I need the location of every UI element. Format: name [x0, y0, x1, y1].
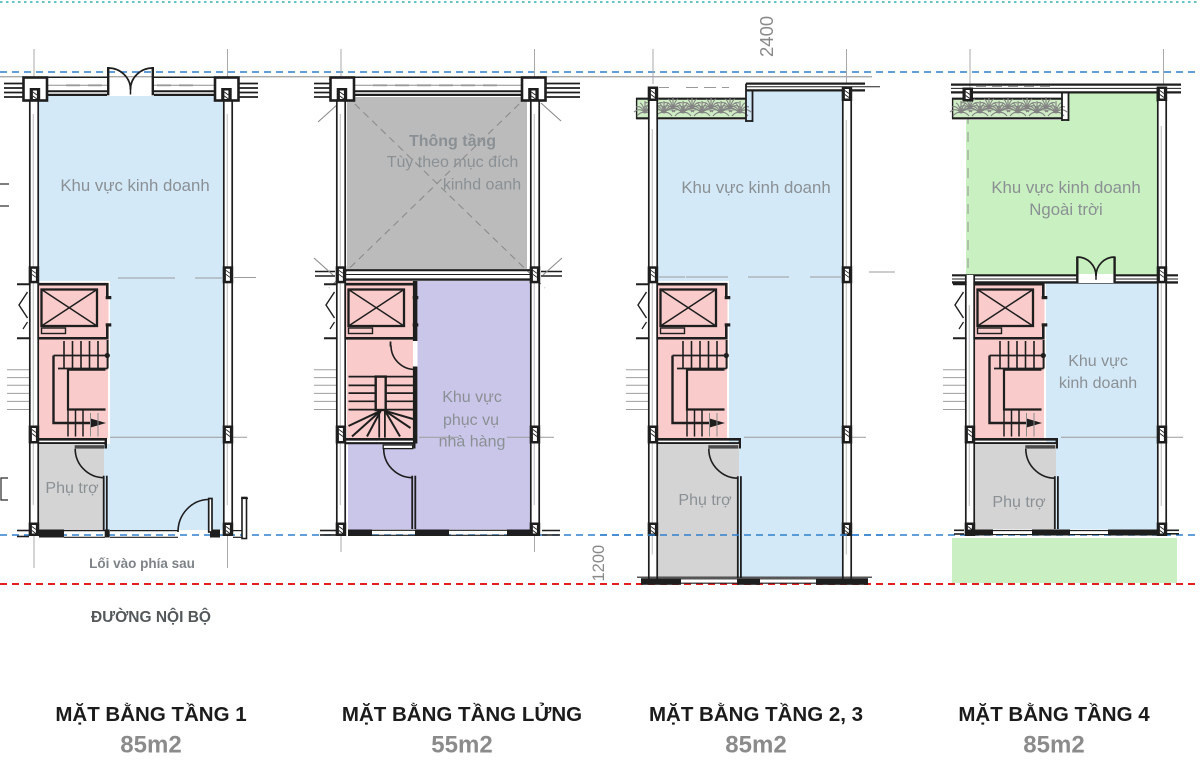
svg-text:Lối vào phía sau: Lối vào phía sau — [89, 556, 195, 571]
svg-text:Khu vực kinh doanh: Khu vực kinh doanh — [991, 178, 1140, 197]
svg-text:55m2: 55m2 — [431, 732, 492, 759]
svg-text:kinhd oanh: kinhd oanh — [443, 177, 521, 194]
svg-text:Ngoài trời: Ngoài trời — [1029, 200, 1103, 219]
svg-text:85m2: 85m2 — [725, 732, 786, 759]
svg-text:Khu vực: Khu vực — [442, 389, 502, 406]
svg-text:ĐƯỜNG NỘI BỘ: ĐƯỜNG NỘI BỘ — [91, 608, 211, 626]
svg-text:MẶT BẰNG TẦNG 1: MẶT BẰNG TẦNG 1 — [55, 702, 246, 726]
svg-text:Phụ trợ: Phụ trợ — [992, 494, 1046, 511]
svg-text:85m2: 85m2 — [1023, 732, 1084, 759]
svg-text:Tùy theo mục đích: Tùy theo mục đích — [387, 154, 519, 171]
svg-text:nhà hàng: nhà hàng — [439, 434, 506, 451]
svg-text:MẶT BẰNG TẦNG 2, 3: MẶT BẰNG TẦNG 2, 3 — [649, 702, 863, 726]
svg-text:Khu vực: Khu vực — [1068, 353, 1128, 370]
svg-text:phục vụ: phục vụ — [443, 412, 499, 429]
svg-text:1200: 1200 — [590, 545, 608, 582]
svg-text:Khu vực kinh doanh: Khu vực kinh doanh — [681, 178, 830, 197]
svg-text:kinh doanh: kinh doanh — [1059, 375, 1137, 392]
svg-text:2400: 2400 — [756, 16, 777, 57]
svg-text:Thông tầng: Thông tầng — [409, 133, 496, 150]
svg-text:85m2: 85m2 — [120, 732, 181, 759]
svg-text:MẶT BẰNG TẦNG LỬNG: MẶT BẰNG TẦNG LỬNG — [342, 702, 582, 726]
svg-text:Phụ trợ: Phụ trợ — [45, 480, 99, 497]
svg-text:Khu vực kinh doanh: Khu vực kinh doanh — [60, 176, 209, 195]
svg-text:MẶT BẰNG TẦNG 4: MẶT BẰNG TẦNG 4 — [958, 702, 1150, 726]
svg-text:Phụ trợ: Phụ trợ — [678, 492, 732, 509]
